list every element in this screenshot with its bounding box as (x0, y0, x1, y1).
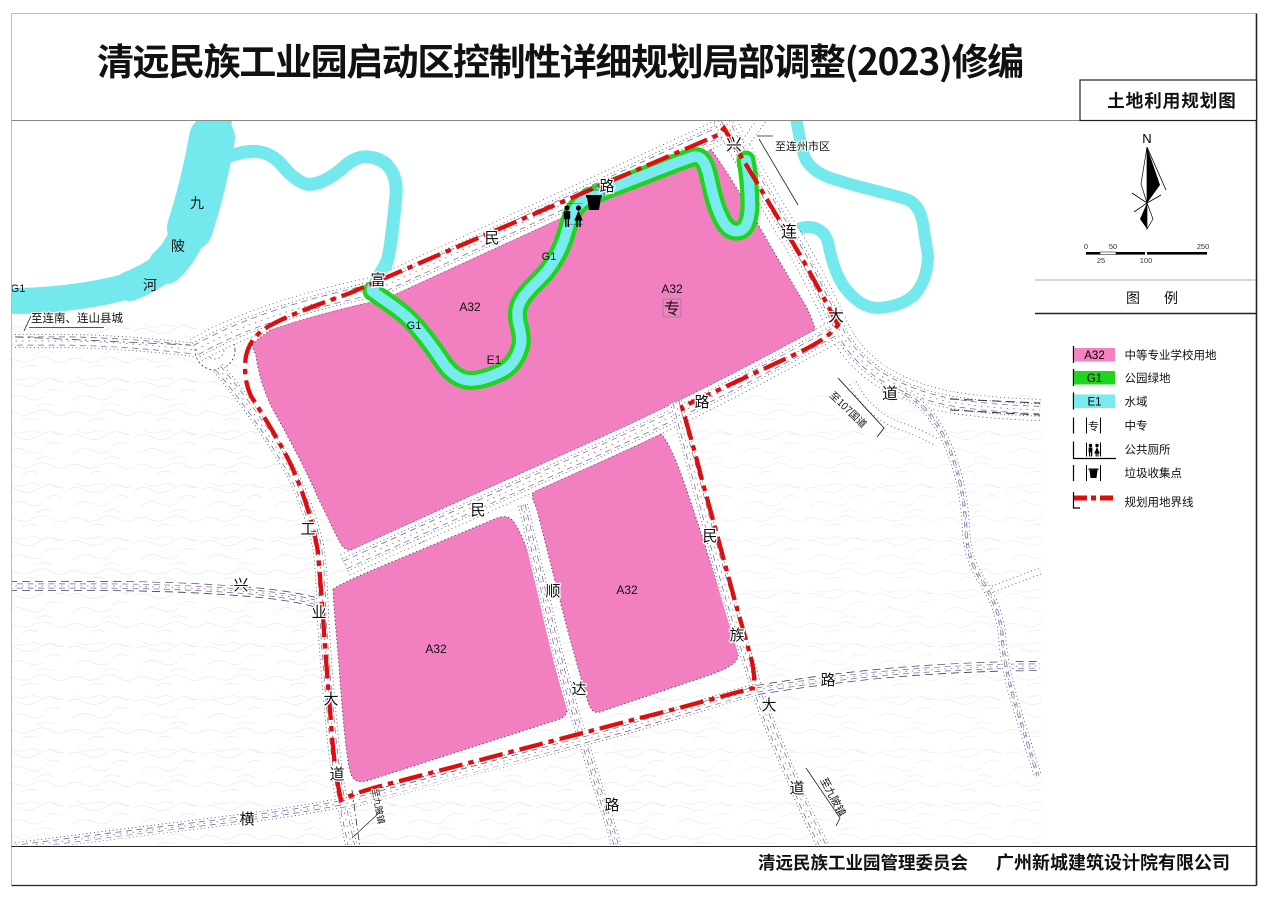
svg-text:大: 大 (761, 694, 776, 715)
svg-text:道: 道 (329, 763, 344, 784)
svg-text:水域: 水域 (1125, 394, 1148, 410)
svg-text:路: 路 (694, 391, 709, 412)
svg-text:E1: E1 (487, 353, 502, 367)
svg-text:民: 民 (702, 525, 717, 546)
svg-text:清远民族工业园启动区控制性详细规划局部调整(2023)修编: 清远民族工业园启动区控制性详细规划局部调整(2023)修编 (97, 32, 1023, 86)
svg-text:A32: A32 (616, 583, 638, 597)
svg-text:兴: 兴 (726, 131, 742, 155)
svg-text:土地利用规划图: 土地利用规划图 (1107, 88, 1237, 113)
svg-text:清远民族工业园管理委员会: 清远民族工业园管理委员会 (758, 850, 968, 875)
svg-text:广州新城建筑设计院有限公司: 广州新城建筑设计院有限公司 (996, 849, 1230, 875)
svg-text:道: 道 (882, 380, 898, 404)
svg-text:族: 族 (729, 624, 744, 645)
svg-text:E1: E1 (1087, 397, 1101, 409)
svg-text:大: 大 (323, 688, 338, 709)
svg-text:图: 图 (1126, 288, 1140, 308)
svg-text:工: 工 (300, 518, 315, 539)
svg-text:G1: G1 (11, 283, 26, 295)
svg-text:专: 专 (1088, 418, 1099, 434)
svg-text:民: 民 (470, 499, 485, 520)
svg-text:路: 路 (599, 175, 614, 196)
svg-text:N: N (1142, 131, 1151, 146)
svg-text:道: 道 (789, 777, 804, 798)
svg-text:50: 50 (1109, 242, 1117, 251)
svg-text:G1: G1 (542, 251, 557, 263)
svg-text:A32: A32 (425, 642, 447, 656)
svg-text:A32: A32 (661, 282, 683, 296)
svg-text:富: 富 (370, 269, 385, 290)
svg-text:公园绿地: 公园绿地 (1125, 370, 1171, 386)
svg-text:达: 达 (571, 678, 586, 699)
svg-text:垃圾收集点: 垃圾收集点 (1125, 465, 1183, 481)
svg-text:至连南、连山县城: 至连南、连山县城 (31, 310, 123, 326)
svg-text:专: 专 (664, 295, 680, 319)
svg-text:至连州市区: 至连州市区 (775, 138, 830, 154)
svg-text:民: 民 (484, 227, 499, 248)
svg-text:250: 250 (1197, 242, 1210, 251)
svg-text:公共厕所: 公共厕所 (1125, 442, 1171, 458)
svg-text:A32: A32 (459, 300, 481, 314)
svg-text:河: 河 (143, 275, 157, 295)
svg-text:例: 例 (1164, 288, 1178, 308)
svg-text:路: 路 (604, 794, 619, 815)
svg-text:连: 连 (781, 218, 797, 242)
svg-text:兴: 兴 (233, 574, 248, 595)
svg-text:G1: G1 (407, 320, 422, 332)
svg-text:A32: A32 (1084, 350, 1104, 362)
svg-text:路: 路 (820, 669, 835, 690)
svg-text:规划用地界线: 规划用地界线 (1125, 494, 1194, 510)
svg-text:中等专业学校用地: 中等专业学校用地 (1125, 347, 1217, 363)
svg-text:顺: 顺 (545, 580, 560, 601)
svg-text:业: 业 (311, 601, 326, 622)
svg-text:25: 25 (1097, 256, 1105, 265)
svg-text:G1: G1 (1087, 373, 1102, 385)
svg-text:大: 大 (828, 302, 844, 326)
svg-text:0: 0 (1084, 242, 1088, 251)
svg-text:横: 横 (239, 808, 254, 829)
svg-text:九: 九 (190, 193, 204, 213)
svg-text:陂: 陂 (171, 236, 185, 256)
svg-text:中专: 中专 (1125, 418, 1148, 434)
svg-text:100: 100 (1140, 256, 1153, 265)
